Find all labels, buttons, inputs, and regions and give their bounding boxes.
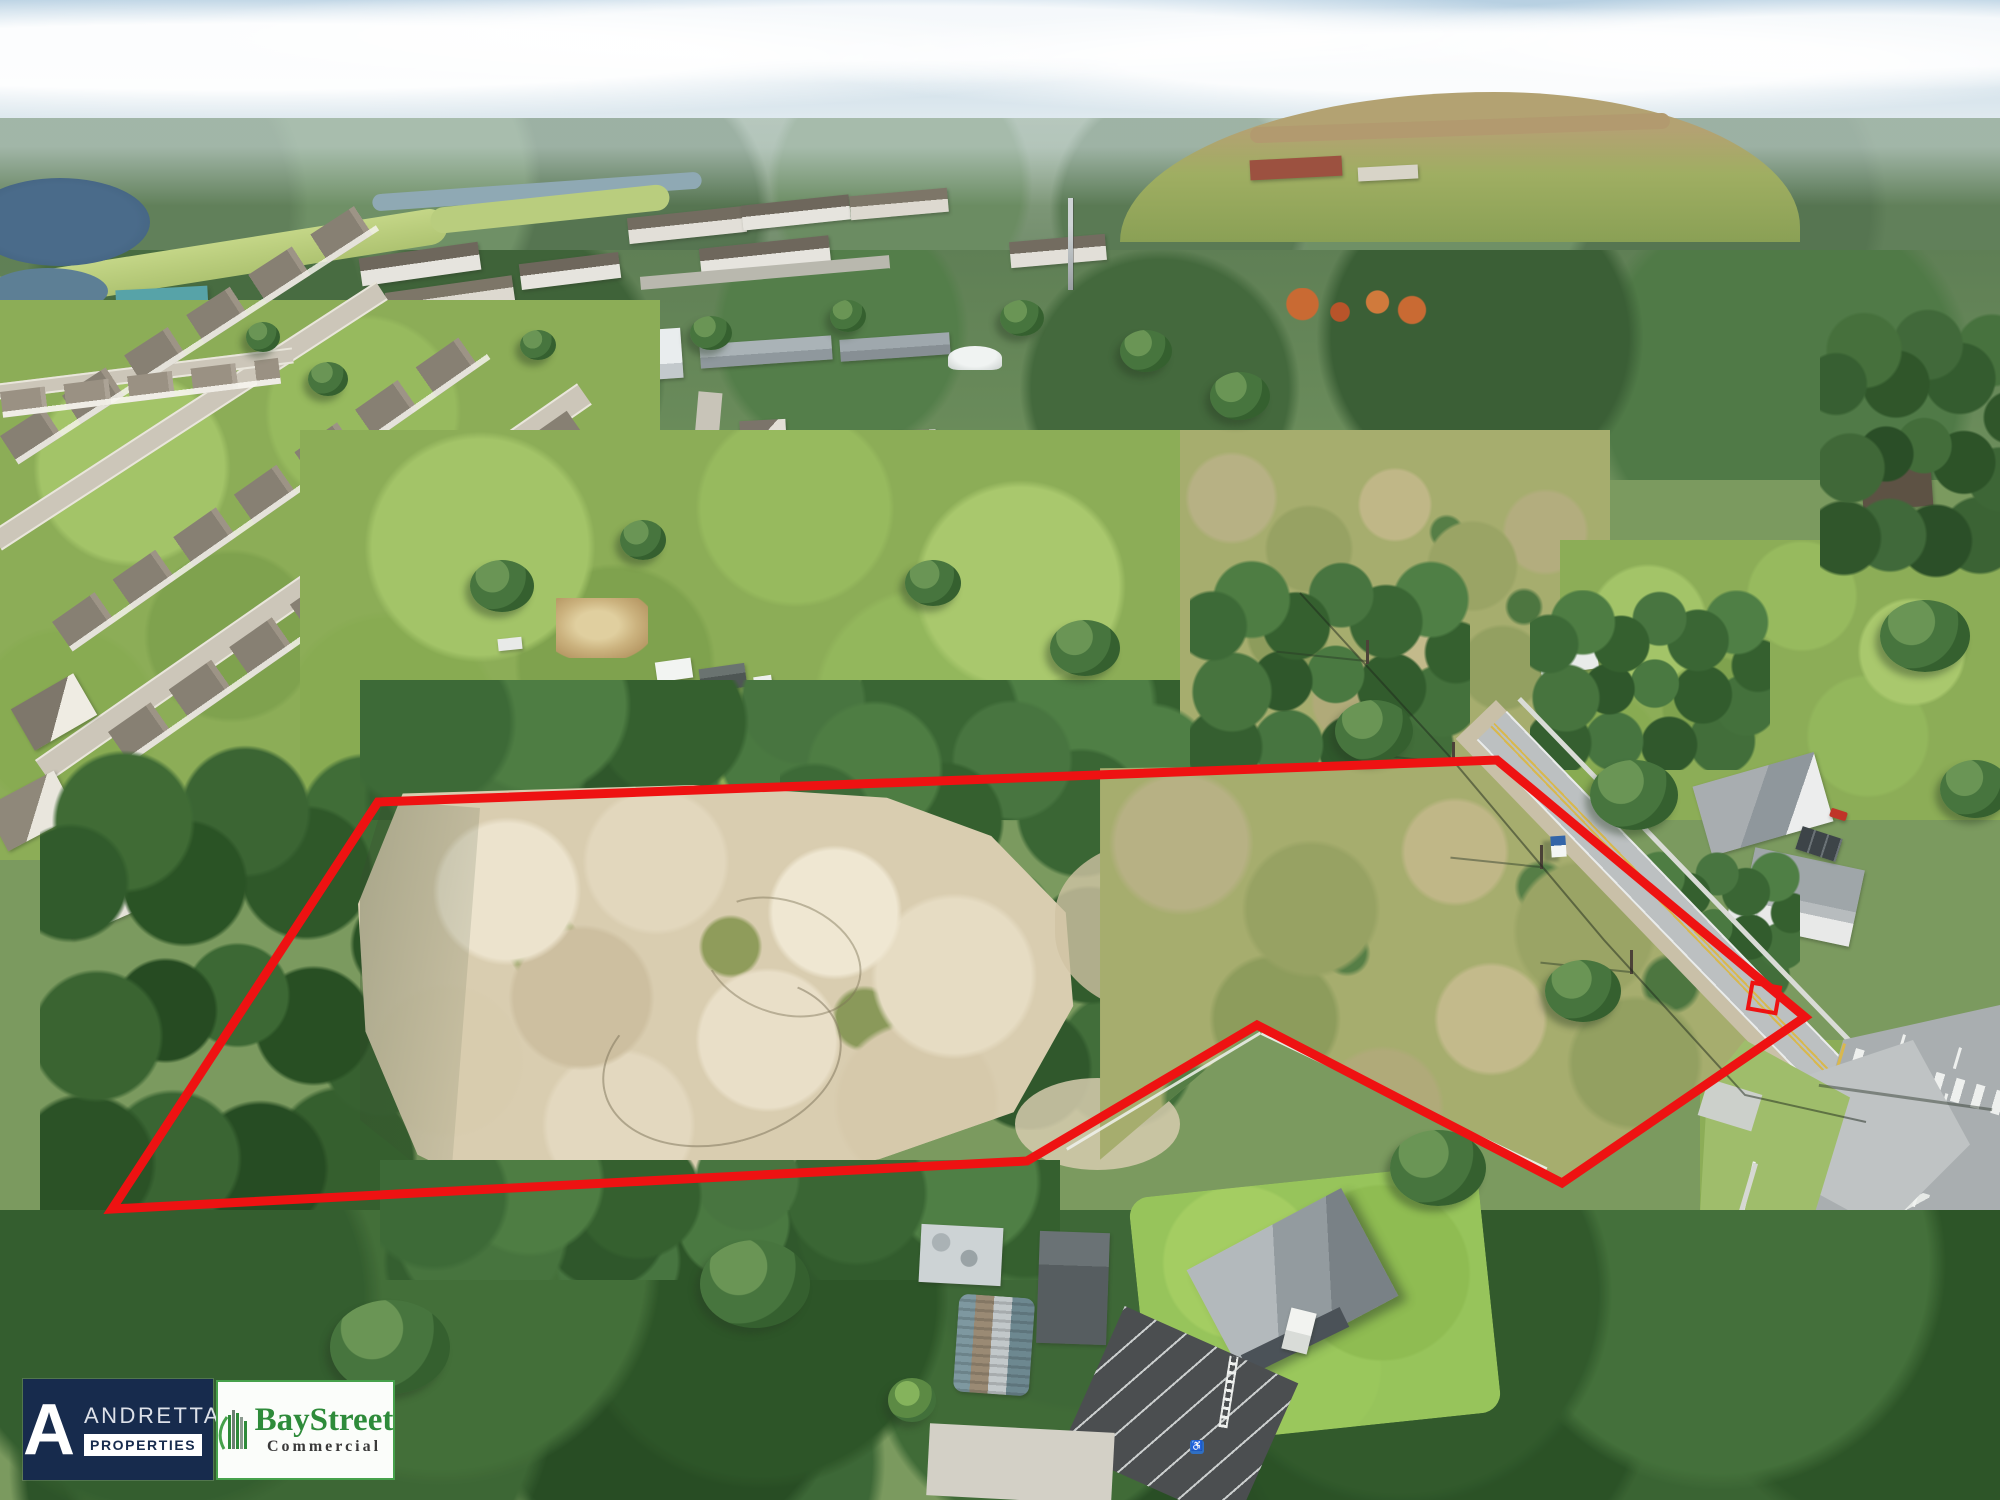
baystreet-name: BayStreet bbox=[255, 1405, 394, 1435]
baystreet-commercial-logo: BayStreet Commercial bbox=[216, 1380, 395, 1480]
property-boundary-line bbox=[112, 760, 1805, 1209]
andretta-properties-logo: A ANDRETTA PROPERTIES bbox=[23, 1379, 213, 1480]
building-icon bbox=[218, 1403, 248, 1458]
andretta-monogram: A bbox=[23, 1387, 75, 1473]
andretta-name: ANDRETTA bbox=[84, 1403, 221, 1429]
andretta-suffix: PROPERTIES bbox=[84, 1434, 202, 1456]
power-line bbox=[1300, 593, 1866, 1122]
aerial-photo: ♿ A ANDRETTA PROPERTIES bbox=[0, 0, 2000, 1500]
baystreet-subtitle: Commercial bbox=[255, 1438, 394, 1456]
boundary-overlay bbox=[0, 0, 2000, 1500]
